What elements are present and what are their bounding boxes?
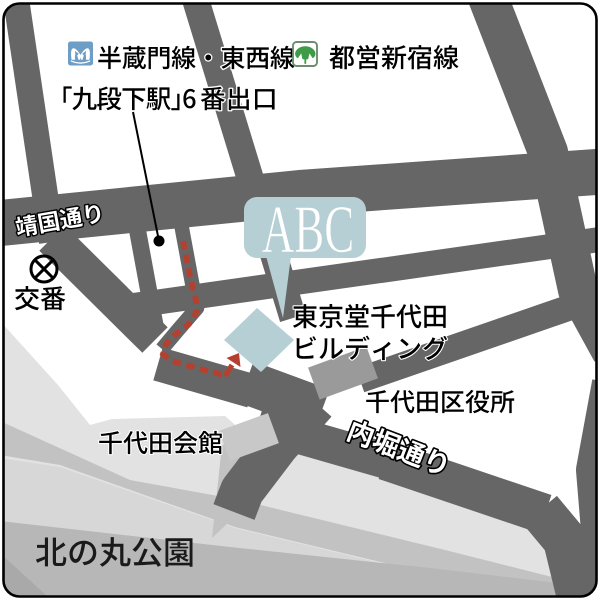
svg-text:ABC: ABC [262,193,354,267]
